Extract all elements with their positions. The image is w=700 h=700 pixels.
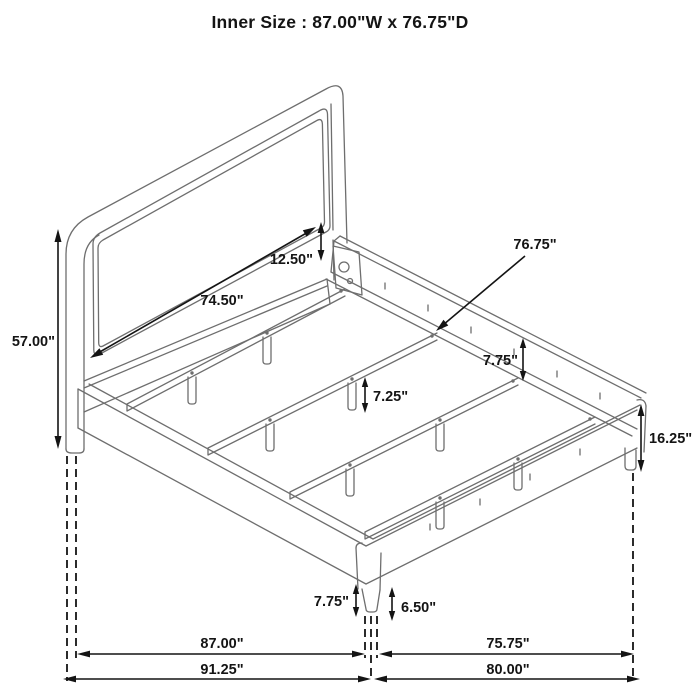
dim-label: 6.50" xyxy=(401,600,436,616)
dimension-annotations: 57.00" 74.50" 12.50" 76.75" 7.75" xyxy=(12,222,692,682)
dim-label: 7.25" xyxy=(373,389,408,405)
left-side-rail xyxy=(78,384,373,584)
dim-outer-width-floor: 91.25" xyxy=(63,662,371,682)
dim-outer-depth-floor: 80.00" xyxy=(374,662,640,682)
dim-inner-depth-floor: 75.75" xyxy=(379,636,634,657)
dim-side-rail-height: 7.75" xyxy=(483,338,526,381)
dim-label: 7.75" xyxy=(483,353,518,369)
dim-headboard-height: 57.00" xyxy=(12,229,62,449)
slat-support-rail xyxy=(365,417,595,539)
front-corner-leg xyxy=(356,543,381,612)
dim-label: 12.50" xyxy=(270,252,313,268)
dim-label: 75.75" xyxy=(486,636,529,652)
bracket-hole-large xyxy=(339,262,349,272)
dim-inner-width-floor: 87.00" xyxy=(77,636,365,657)
dim-label: 7.75" xyxy=(314,594,349,610)
page-title: Inner Size : 87.00"W x 76.75"D xyxy=(211,12,468,32)
dim-label: 87.00" xyxy=(200,636,243,652)
bed-dimension-diagram: Inner Size : 87.00"W x 76.75"D xyxy=(0,0,700,700)
dim-label: 74.50" xyxy=(200,293,243,309)
bed-line-art xyxy=(66,86,646,612)
dim-label: 76.75" xyxy=(513,237,556,253)
projection-lines xyxy=(67,456,633,681)
front-rail xyxy=(366,405,640,584)
diagram-canvas: Inner Size : 87.00"W x 76.75"D xyxy=(0,0,700,700)
dim-label: 16.25" xyxy=(649,431,692,447)
dim-label: 91.25" xyxy=(200,662,243,678)
dim-label: 57.00" xyxy=(12,334,55,350)
dim-front-corner-section-height: 7.75" xyxy=(314,584,359,617)
dim-center-support-leg-height: 7.25" xyxy=(362,377,408,413)
right-side-rail xyxy=(326,236,646,436)
headboard xyxy=(66,86,347,453)
dim-panel-to-rail: 12.50" xyxy=(270,222,325,268)
dim-front-leg-height: 6.50" xyxy=(389,587,436,621)
dim-label: 80.00" xyxy=(486,662,529,678)
